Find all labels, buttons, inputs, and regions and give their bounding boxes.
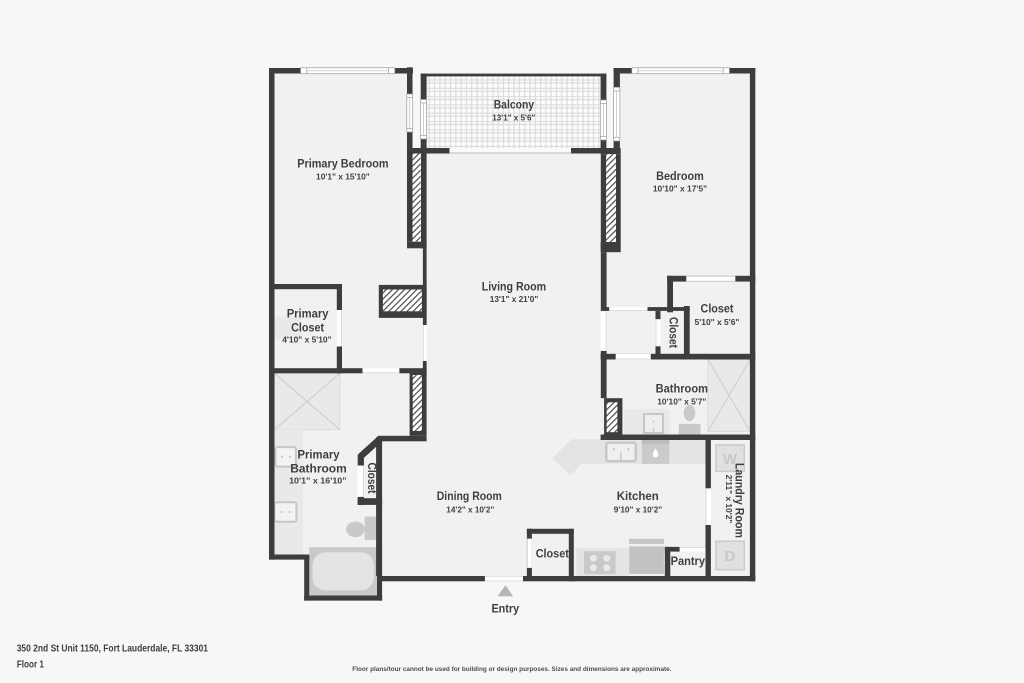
- svg-text:13'1" x 21'0": 13'1" x 21'0": [490, 294, 539, 304]
- svg-text:10'10" x 17'5": 10'10" x 17'5": [653, 184, 707, 194]
- svg-text:Closet: Closet: [536, 549, 569, 561]
- svg-text:10'1" x 15'10": 10'1" x 15'10": [316, 172, 370, 182]
- svg-text:13'1" x 5'6": 13'1" x 5'6": [492, 112, 535, 122]
- svg-text:Closet: Closet: [365, 463, 377, 494]
- svg-text:10'10" x 5'7": 10'10" x 5'7": [657, 397, 706, 407]
- svg-text:D: D: [725, 548, 736, 565]
- svg-text:5'10" x 5'6": 5'10" x 5'6": [695, 317, 740, 327]
- svg-text:Bathroom: Bathroom: [290, 464, 346, 476]
- svg-text:Closet: Closet: [701, 304, 734, 316]
- svg-text:2'11" x 10'2": 2'11" x 10'2": [724, 475, 734, 524]
- svg-text:4'10" x 5'10": 4'10" x 5'10": [282, 335, 331, 345]
- svg-text:Dining Room: Dining Room: [437, 491, 502, 503]
- svg-text:Balcony: Balcony: [494, 99, 535, 111]
- svg-text:Closet: Closet: [291, 323, 324, 335]
- svg-text:Primary: Primary: [287, 309, 329, 321]
- svg-text:14'2" x 10'2": 14'2" x 10'2": [446, 504, 494, 514]
- svg-text:Floor 1: Floor 1: [17, 659, 44, 671]
- svg-text:Floor plans/tour cannot be use: Floor plans/tour cannot be used for buil…: [352, 666, 671, 673]
- svg-text:9'10" x 10'2": 9'10" x 10'2": [614, 504, 662, 514]
- svg-text:10'1" x 16'10": 10'1" x 16'10": [289, 476, 346, 486]
- svg-text:Primary: Primary: [298, 450, 341, 462]
- svg-text:Kitchen: Kitchen: [617, 491, 659, 503]
- svg-text:Closet: Closet: [667, 317, 679, 348]
- svg-text:350 2nd St Unit 1150, Fort Lau: 350 2nd St Unit 1150, Fort Lauderdale, F…: [17, 643, 208, 655]
- svg-text:Bathroom: Bathroom: [656, 384, 708, 396]
- svg-text:Living Room: Living Room: [482, 282, 546, 294]
- svg-text:Entry: Entry: [491, 603, 519, 615]
- svg-text:Bedroom: Bedroom: [656, 171, 704, 183]
- svg-text:Pantry: Pantry: [671, 556, 706, 568]
- svg-text:Primary Bedroom: Primary Bedroom: [297, 159, 388, 171]
